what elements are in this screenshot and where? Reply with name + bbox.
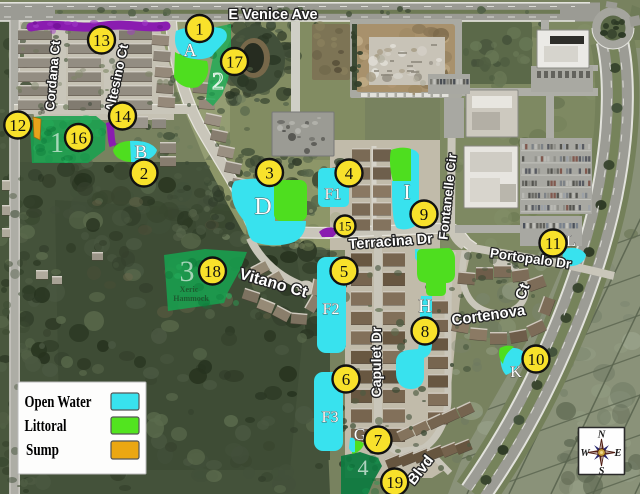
svg-text:F3: F3 — [322, 409, 339, 426]
svg-text:Open Water: Open Water — [25, 392, 92, 411]
svg-text:K: K — [510, 364, 522, 381]
svg-text:12: 12 — [9, 116, 26, 135]
svg-text:19: 19 — [386, 473, 403, 492]
svg-text:N: N — [597, 430, 606, 441]
svg-text:F1: F1 — [325, 186, 342, 203]
svg-text:Hammock: Hammock — [173, 294, 209, 303]
svg-text:11: 11 — [545, 234, 561, 253]
svg-text:3: 3 — [180, 255, 195, 288]
svg-text:18: 18 — [204, 262, 221, 281]
svg-text:Xeric: Xeric — [180, 285, 199, 294]
svg-text:2: 2 — [212, 69, 224, 95]
svg-text:14: 14 — [114, 107, 132, 126]
svg-text:Sump: Sump — [26, 440, 59, 459]
svg-text:5: 5 — [340, 262, 349, 281]
svg-text:Littoral: Littoral — [25, 416, 67, 435]
svg-text:1: 1 — [50, 128, 64, 159]
svg-text:6: 6 — [342, 370, 351, 389]
svg-text:17: 17 — [226, 52, 244, 71]
svg-text:2: 2 — [140, 164, 149, 183]
svg-text:1: 1 — [195, 19, 204, 38]
svg-text:4: 4 — [345, 164, 354, 183]
svg-text:S: S — [599, 466, 605, 477]
svg-text:E: E — [613, 448, 621, 459]
svg-text:4: 4 — [358, 455, 369, 480]
svg-text:8: 8 — [421, 322, 430, 341]
svg-text:E Venice Ave: E Venice Ave — [228, 7, 317, 23]
svg-text:10: 10 — [528, 350, 545, 369]
svg-text:I: I — [404, 180, 411, 204]
svg-text:3: 3 — [265, 163, 274, 182]
svg-text:Capulet Dr: Capulet Dr — [368, 326, 384, 397]
svg-text:16: 16 — [70, 128, 87, 147]
svg-text:W: W — [580, 448, 590, 459]
svg-text:D: D — [254, 194, 271, 220]
svg-text:9: 9 — [420, 205, 429, 224]
svg-text:13: 13 — [93, 31, 110, 50]
svg-text:A: A — [184, 40, 197, 60]
svg-text:F2: F2 — [323, 301, 340, 318]
svg-text:H: H — [418, 296, 432, 317]
svg-text:7: 7 — [374, 431, 383, 450]
svg-text:15: 15 — [339, 219, 352, 234]
